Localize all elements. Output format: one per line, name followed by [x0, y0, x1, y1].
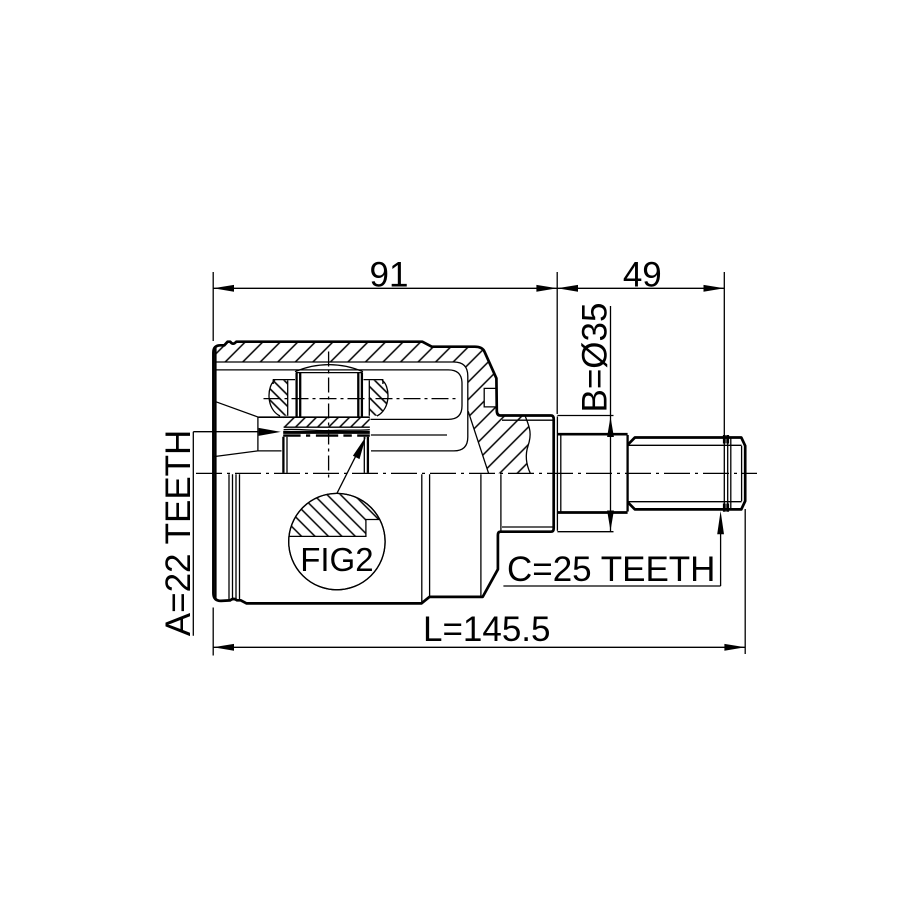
svg-text:49: 49 — [623, 256, 662, 295]
svg-text:L=145.5: L=145.5 — [423, 610, 551, 649]
svg-text:B=Ø35: B=Ø35 — [576, 303, 615, 413]
svg-text:91: 91 — [370, 256, 409, 295]
svg-text:C=25 TEETH: C=25 TEETH — [507, 550, 715, 589]
svg-text:A=22 TEETH: A=22 TEETH — [159, 430, 198, 637]
svg-text:FIG2: FIG2 — [300, 541, 373, 578]
